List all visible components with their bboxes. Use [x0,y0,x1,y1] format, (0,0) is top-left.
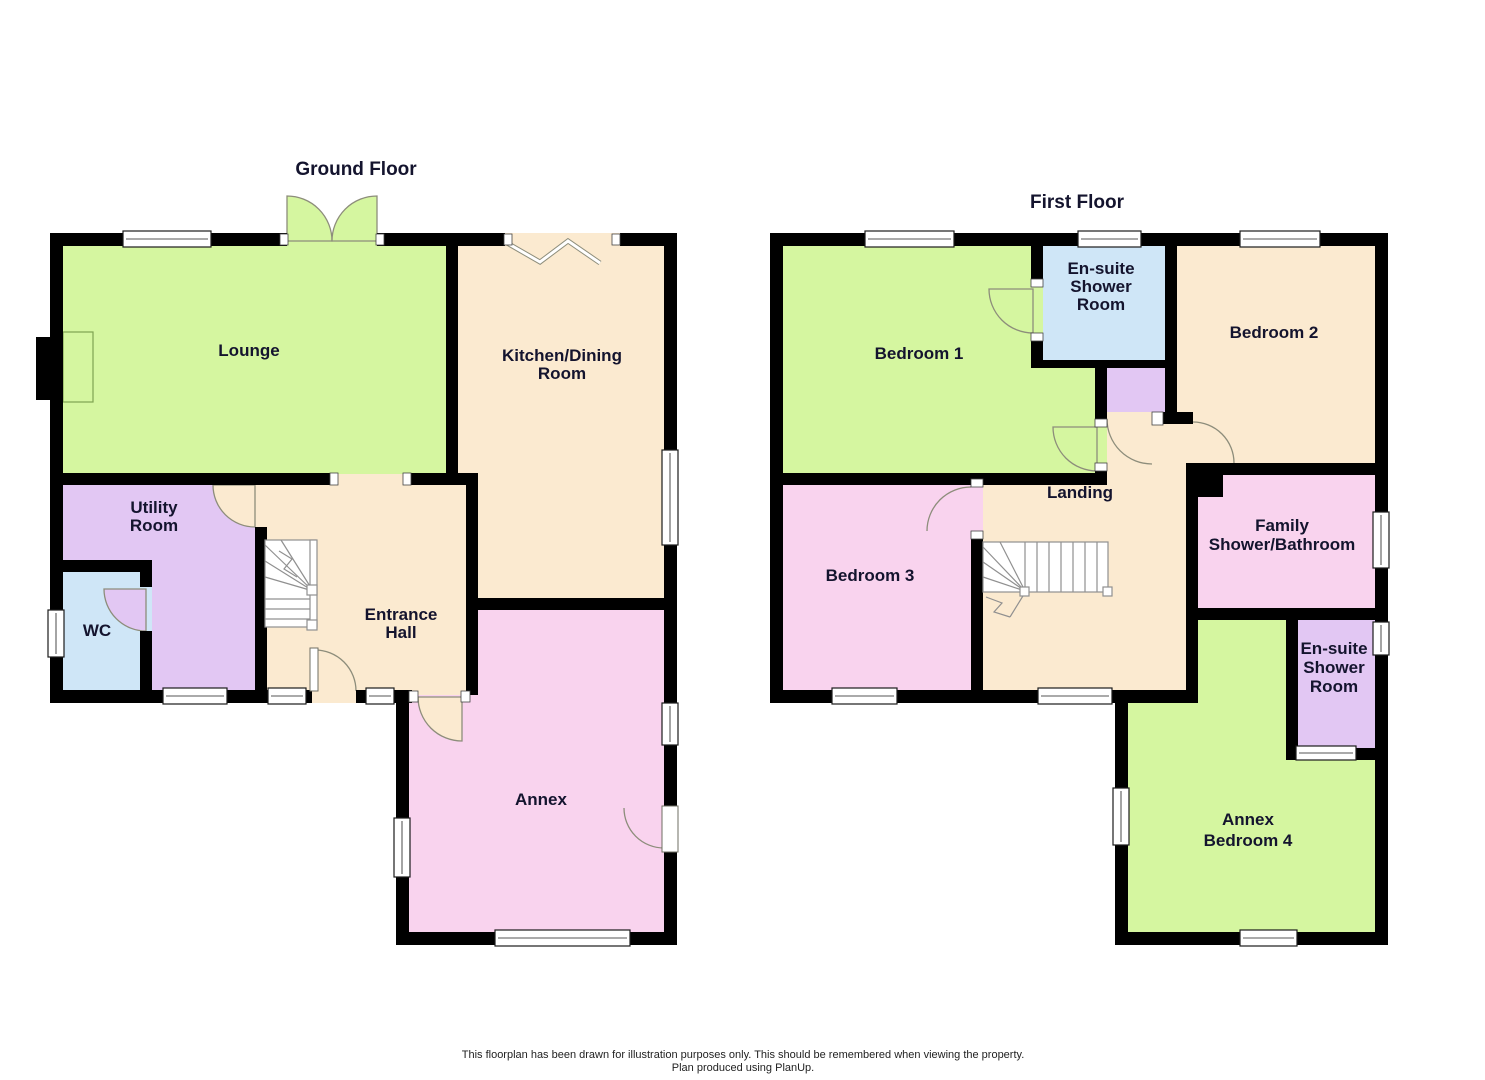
label-utility-line1: Utility [130,498,178,517]
window [1240,231,1320,247]
footer-line2: Plan produced using PlanUp. [672,1062,814,1074]
window [1373,622,1389,655]
label-ensuite1-line3: Room [1077,295,1125,314]
label-family-bathroom-line1: Family [1255,516,1309,535]
label-kitchen-line1: Kitchen/Dining [502,346,622,365]
window [163,688,227,704]
fireplace-hearth [63,332,93,402]
ground-floor-title: Ground Floor [295,159,417,180]
window [832,688,897,704]
window [268,688,306,704]
window [1373,512,1389,568]
window [48,610,64,657]
label-landing: Landing [1047,483,1113,502]
window [495,930,630,946]
ground-floor-plan: Ground Floor Lounge Kitchen/Dining Room … [36,159,678,946]
floorplan-canvas: Ground Floor Lounge Kitchen/Dining Room … [0,0,1485,1080]
label-hall-line1: Entrance [365,605,438,624]
floorplan-page: Ground Floor Lounge Kitchen/Dining Room … [0,0,1485,1080]
window [1078,231,1141,247]
window [865,231,954,247]
bedroom3-doorway-gap [971,487,983,531]
chimney-breast [36,337,50,400]
label-bedroom2: Bedroom 2 [1230,323,1319,342]
label-ensuite1-line2: Shower [1070,277,1132,296]
staircase-ground [265,540,317,630]
label-annex: Annex [515,790,568,809]
cupboard-floor [1107,367,1165,412]
label-ensuite1-line1: En-suite [1067,259,1134,278]
label-kitchen-line2: Room [538,364,586,383]
label-lounge: Lounge [218,341,279,360]
label-wc: WC [83,621,111,640]
label-bedroom3: Bedroom 3 [826,566,915,585]
window [394,818,410,877]
window [1113,788,1129,845]
sliding-door [1296,746,1356,760]
label-ensuite2-line1: En-suite [1300,639,1367,658]
window [123,231,211,247]
window [662,703,678,745]
label-ensuite2-line2: Shower [1303,658,1365,677]
label-hall-line2: Hall [385,623,416,642]
footer-disclaimer: This floorplan has been drawn for illust… [462,1049,1025,1074]
label-ensuite2-line3: Room [1310,677,1358,696]
footer-line1: This floorplan has been drawn for illust… [462,1049,1025,1061]
french-door-right-leaf [332,196,377,241]
first-floor-plan: First Floor Bedroom 1 En-suite Shower Ro… [770,192,1389,946]
label-utility-line2: Room [130,516,178,535]
window [662,450,678,545]
label-family-bathroom-line2: Shower/Bathroom [1209,535,1355,554]
annex-side-door-leaf [662,806,678,852]
front-door-leaf [310,648,318,691]
label-bedroom1: Bedroom 1 [875,344,964,363]
label-annex-bedroom4-line2: Bedroom 4 [1204,831,1293,850]
label-annex-bedroom4-line1: Annex [1222,810,1275,829]
window [366,688,394,704]
french-door-left-leaf [287,196,332,241]
room-lounge-floor [63,246,458,474]
first-floor-title: First Floor [1030,192,1125,213]
window [1038,688,1112,704]
room-bedroom3-floor [783,485,971,690]
window [1240,930,1297,946]
